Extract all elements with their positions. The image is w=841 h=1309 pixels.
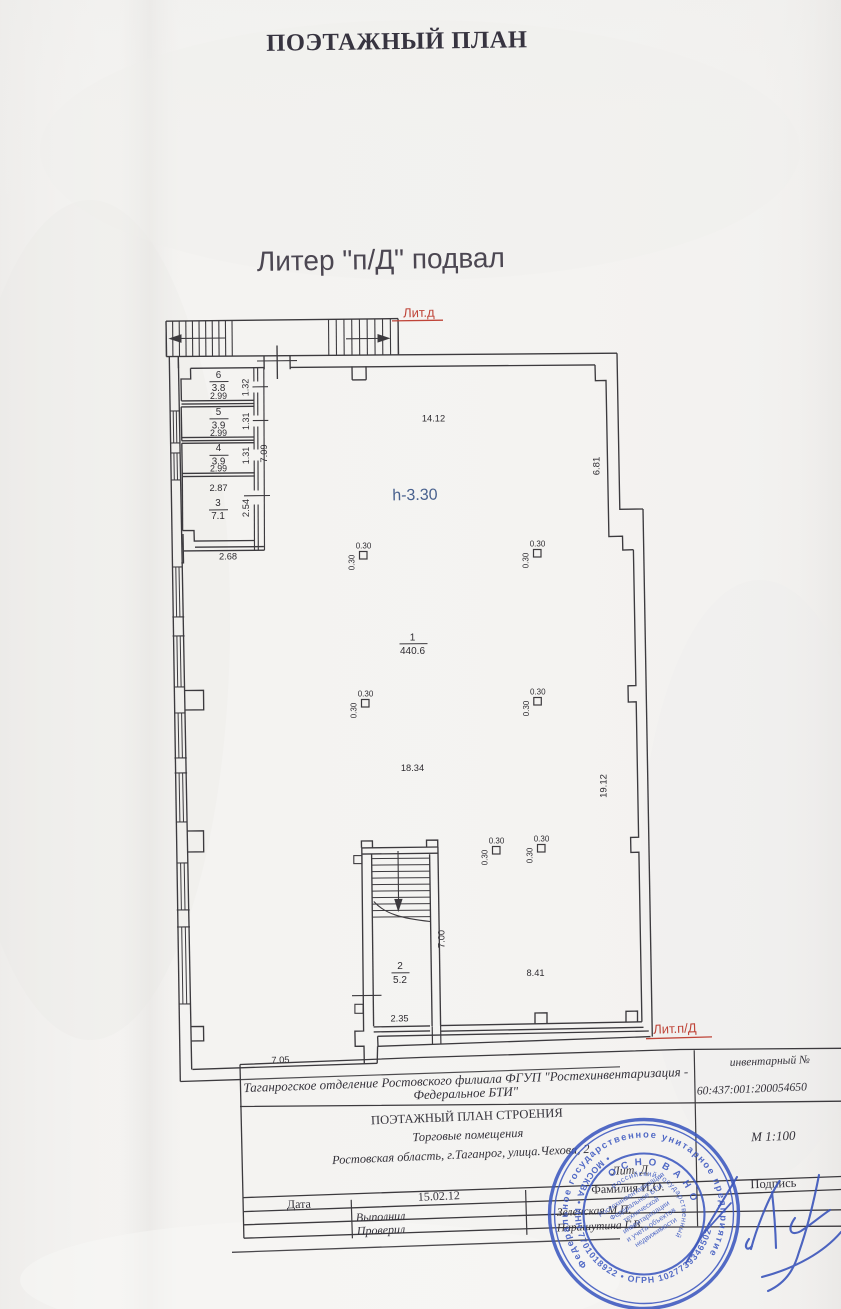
- svg-text:Лит.д: Лит.д: [403, 305, 435, 321]
- svg-text:7.00: 7.00: [437, 930, 447, 948]
- svg-text:Лит.п/Д: Лит.п/Д: [653, 1020, 697, 1037]
- svg-text:2.54: 2.54: [241, 499, 251, 517]
- svg-text:14.12: 14.12: [422, 414, 445, 424]
- svg-text:0.30: 0.30: [489, 837, 505, 846]
- svg-text:6.81: 6.81: [592, 457, 603, 476]
- svg-text:5.2: 5.2: [393, 975, 407, 986]
- svg-text:7.1: 7.1: [211, 511, 225, 522]
- svg-text:6: 6: [216, 370, 222, 381]
- svg-text:19.12: 19.12: [599, 774, 610, 798]
- svg-text:0.30: 0.30: [358, 690, 374, 699]
- svg-text:0.30: 0.30: [526, 847, 535, 863]
- svg-text:8.41: 8.41: [526, 968, 544, 978]
- svg-text:Литер "п/Д" подвал: Литер "п/Д" подвал: [257, 242, 505, 277]
- svg-text:0.30: 0.30: [350, 702, 359, 718]
- svg-text:1.31: 1.31: [241, 412, 251, 430]
- svg-text:ПОЭТАЖНЫЙ ПЛАН: ПОЭТАЖНЫЙ ПЛАН: [266, 25, 528, 57]
- svg-text:0.30: 0.30: [534, 835, 550, 844]
- svg-text:1: 1: [410, 633, 416, 644]
- svg-text:1.32: 1.32: [241, 379, 251, 397]
- svg-text:2.99: 2.99: [210, 463, 227, 473]
- svg-text:0.30: 0.30: [530, 688, 546, 697]
- svg-text:2.35: 2.35: [390, 1014, 408, 1024]
- svg-text:2.99: 2.99: [210, 428, 227, 438]
- svg-text:Дата: Дата: [287, 1197, 312, 1212]
- svg-text:h-3.30: h-3.30: [392, 487, 438, 505]
- svg-text:Проверил: Проверил: [356, 1222, 406, 1238]
- svg-text:2: 2: [397, 961, 403, 972]
- svg-text:7.09: 7.09: [259, 444, 269, 462]
- svg-text:3: 3: [215, 498, 221, 509]
- svg-text:0.30: 0.30: [522, 552, 531, 568]
- svg-text:4: 4: [216, 443, 222, 454]
- svg-text:1.31: 1.31: [241, 447, 251, 465]
- svg-text:0.30: 0.30: [481, 849, 490, 865]
- svg-text:18.34: 18.34: [401, 763, 424, 773]
- svg-text:2.68: 2.68: [219, 552, 237, 562]
- svg-text:440.6: 440.6: [400, 646, 425, 657]
- svg-text:2.99: 2.99: [210, 391, 227, 401]
- svg-text:15.02.12: 15.02.12: [418, 1188, 461, 1204]
- svg-text:0.30: 0.30: [530, 540, 546, 549]
- svg-text:0.30: 0.30: [356, 542, 372, 551]
- svg-text:2.87: 2.87: [209, 483, 227, 493]
- svg-text:М 1:100: М 1:100: [750, 1128, 796, 1145]
- svg-text:0.30: 0.30: [348, 554, 357, 570]
- svg-text:5: 5: [216, 407, 222, 418]
- svg-text:0.30: 0.30: [522, 700, 531, 716]
